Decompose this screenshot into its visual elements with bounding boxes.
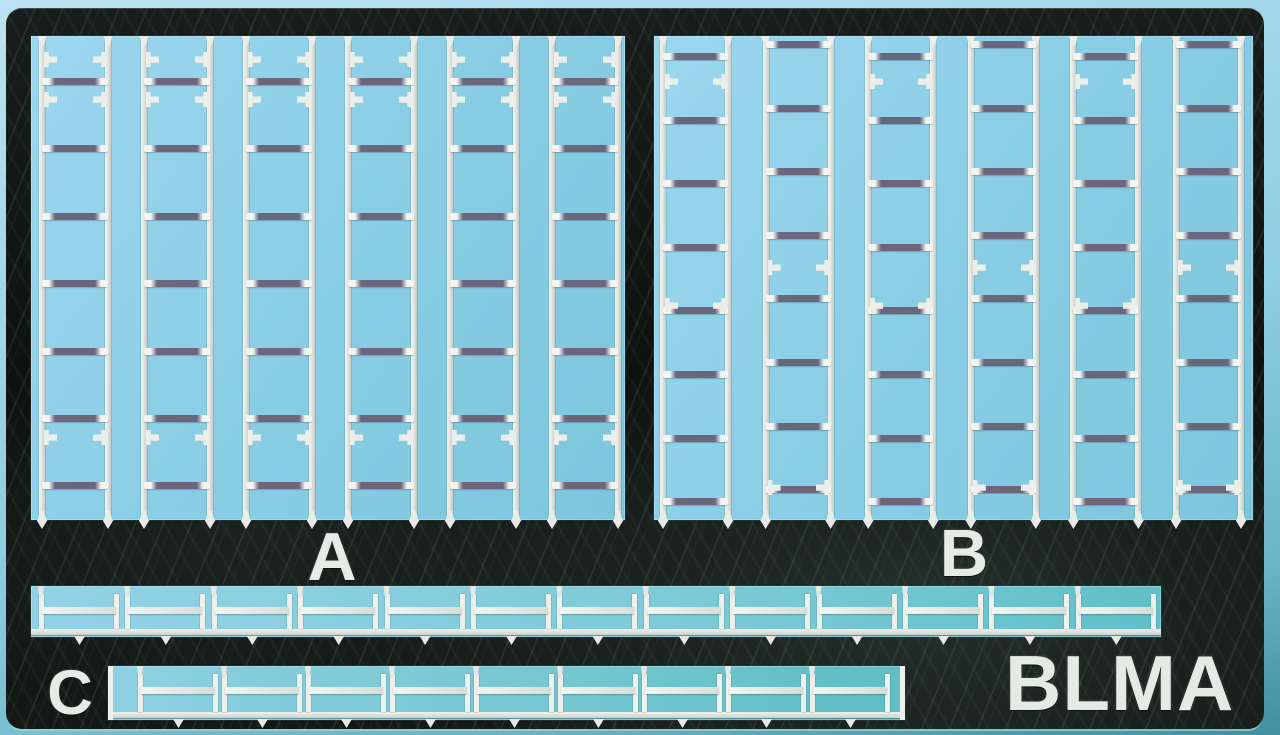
etch-tab [1030, 520, 1041, 529]
ladder-rung [1176, 423, 1241, 430]
ladder-rung [971, 105, 1036, 112]
etch-tab [511, 520, 522, 529]
etch-tab [862, 511, 874, 520]
etch-tab [1132, 511, 1144, 520]
ladder-rung [552, 280, 618, 287]
ladder-rung [144, 145, 210, 152]
mount-hook [452, 92, 465, 107]
mount-hook [452, 52, 465, 67]
etch-tab [1030, 511, 1042, 520]
etch-tab [723, 520, 734, 529]
part-cross-bar [813, 687, 887, 694]
window-section-a [31, 36, 625, 520]
ladder-rung [144, 78, 210, 85]
mount-hook [350, 430, 363, 445]
ladder-rail [243, 36, 249, 520]
ladder-rung [450, 145, 516, 152]
part-cross-bar [561, 687, 635, 694]
strip-end-cap [108, 666, 113, 720]
mount-hook [44, 92, 57, 107]
ladder-rung [868, 117, 933, 124]
etch-tab [928, 520, 939, 529]
ladder-rung [450, 348, 516, 355]
ladder-rail [930, 36, 936, 520]
grab-iron-part [558, 674, 638, 712]
etch-tab [139, 520, 150, 529]
mount-hook [603, 430, 616, 445]
ladder-rung [144, 415, 210, 422]
mount-hook [399, 92, 412, 107]
etch-tab [241, 520, 252, 529]
ladder-rung [1073, 53, 1138, 60]
mount-hook [195, 92, 208, 107]
ladder-rung [552, 78, 618, 85]
etch-tab [863, 520, 874, 529]
ladder-rung [1176, 168, 1241, 175]
strip-row-2 [108, 666, 905, 720]
etch-tab [257, 719, 268, 728]
part-cross-bar [141, 687, 215, 694]
ladder-rung [246, 280, 312, 287]
ladder [1070, 36, 1141, 520]
mount-hook [554, 430, 567, 445]
ladder-rail [725, 36, 731, 520]
grab-iron-part [471, 594, 551, 629]
ladder-rail [1135, 36, 1141, 520]
etch-tab [658, 520, 669, 529]
etch-tab [445, 520, 456, 529]
mount-hook [603, 92, 616, 107]
ladder-rung [450, 213, 516, 220]
ladder-rung [868, 180, 933, 187]
etch-tab [657, 511, 669, 520]
ladder-rung [1176, 105, 1241, 112]
mount-hook [1021, 260, 1034, 275]
etch-tab [341, 719, 352, 728]
ladder-rung [246, 482, 312, 489]
ladder-rung [552, 213, 618, 220]
mount-hook [297, 92, 310, 107]
part-cross-bar [992, 607, 1066, 614]
mount-hook [248, 92, 261, 107]
ladder-rail [549, 36, 555, 520]
ladder-rung [348, 482, 414, 489]
strip-row-1 [31, 586, 1161, 637]
mount-hook [195, 52, 208, 67]
etch-tab [1236, 520, 1247, 529]
mount-hook [554, 92, 567, 107]
etch-tab [1068, 520, 1079, 529]
mount-hook [816, 260, 829, 275]
ladder-rail [207, 36, 213, 520]
grab-iron-part [390, 674, 470, 712]
ladder-rung [766, 105, 831, 112]
grab-iron-part [903, 594, 983, 629]
etch-tab [845, 719, 856, 728]
ladder-rail [309, 36, 315, 520]
etch-tab [657, 36, 669, 45]
etch-tab [1067, 511, 1079, 520]
part-cross-bar [820, 607, 894, 614]
mount-hook [44, 430, 57, 445]
part-cross-bar [309, 687, 383, 694]
etch-tab [306, 36, 318, 45]
part-cross-bar [477, 687, 551, 694]
mount-hook [248, 430, 261, 445]
ladder [968, 36, 1039, 520]
ladder-rung [246, 78, 312, 85]
ladder-rung [450, 415, 516, 422]
part-cross-bar [647, 607, 721, 614]
etch-tab [760, 520, 771, 529]
etch-tab [240, 36, 252, 45]
section-label-a: A [307, 523, 356, 591]
ladder-rung [663, 53, 728, 60]
ladder-rung [144, 348, 210, 355]
ladder-rung [663, 435, 728, 442]
grab-iron-part [644, 594, 724, 629]
ladder-rung [1176, 232, 1241, 239]
mount-hook [248, 52, 261, 67]
strip-runner [108, 712, 905, 718]
etch-tab [1235, 511, 1247, 520]
etch-tab [612, 36, 624, 45]
mount-hook [973, 260, 986, 275]
etch-tab [102, 36, 114, 45]
etch-tab [613, 520, 624, 529]
etch-tab [927, 36, 939, 45]
ladder-rail [513, 36, 519, 520]
etch-tab [825, 511, 837, 520]
fret-sheet: A B C BLMA [6, 8, 1264, 729]
mount-hook [146, 52, 159, 67]
grab-iron-part [39, 594, 119, 629]
mount-hook [350, 52, 363, 67]
part-cross-bar [474, 607, 548, 614]
ladder-rail [345, 36, 351, 520]
mount-hook [1226, 260, 1239, 275]
part-cross-bar [729, 687, 803, 694]
etch-tab [825, 520, 836, 529]
etch-tab [240, 511, 252, 520]
mount-hook [501, 52, 514, 67]
etch-tab [938, 636, 949, 645]
grab-iron-part [298, 594, 378, 629]
part-cross-bar [560, 607, 634, 614]
etched-fret-photo: A B C BLMA [0, 0, 1280, 735]
etch-tab [765, 636, 776, 645]
mount-hook [554, 52, 567, 67]
etch-tab [1133, 520, 1144, 529]
grab-iron-part [125, 594, 205, 629]
ladder [39, 36, 111, 520]
part-cross-bar [225, 687, 299, 694]
grab-iron-part [642, 674, 722, 712]
grab-iron-part [474, 674, 554, 712]
ladder [549, 36, 621, 520]
ladder-rung [868, 53, 933, 60]
etch-tab [408, 511, 420, 520]
mount-hook [195, 430, 208, 445]
part-cross-bar [393, 687, 467, 694]
etch-tab [506, 636, 517, 645]
ladder-rung [552, 415, 618, 422]
ladder [865, 36, 936, 520]
section-label-b: B [940, 520, 988, 587]
ladder-rung [246, 348, 312, 355]
ladder-rung [1176, 41, 1241, 48]
part-cross-bar [301, 607, 375, 614]
ladder-rung [766, 423, 831, 430]
etch-tab [444, 511, 456, 520]
ladder-rung [552, 482, 618, 489]
grab-iron-part [222, 674, 302, 712]
ladder-rung [868, 371, 933, 378]
ladder-rung [348, 348, 414, 355]
ladder-rung [663, 244, 728, 251]
etch-tab [342, 36, 354, 45]
etch-tab [546, 36, 558, 45]
ladder-rail [865, 36, 871, 520]
ladder-rung [1176, 359, 1241, 366]
part-cross-bar [1079, 607, 1153, 614]
etch-tab [103, 520, 114, 529]
ladder-rung [663, 180, 728, 187]
ladder-rung [42, 213, 108, 220]
etch-tab [36, 36, 48, 45]
etch-tab [612, 511, 624, 520]
etch-tab [138, 511, 150, 520]
grab-iron-part [306, 674, 386, 712]
ladder-rung [663, 117, 728, 124]
mount-hook [713, 74, 726, 89]
ladder-rung [1073, 435, 1138, 442]
ladder-rung [766, 232, 831, 239]
ladder-rung [1073, 371, 1138, 378]
etch-tab [102, 511, 114, 520]
etch-tab [1170, 511, 1182, 520]
etch-tab [760, 511, 772, 520]
mount-hook [399, 430, 412, 445]
ladder-rung [42, 348, 108, 355]
etch-tab [138, 36, 150, 45]
ladder-rail [141, 36, 147, 520]
mount-hook [146, 430, 159, 445]
ladder-rung [42, 78, 108, 85]
etch-tab [333, 636, 344, 645]
mount-hook [501, 92, 514, 107]
etch-tab [509, 719, 520, 728]
ladder-rail [411, 36, 417, 520]
etch-tab [160, 636, 171, 645]
etch-tab [36, 511, 48, 520]
part-cross-bar [128, 607, 202, 614]
ladder [141, 36, 213, 520]
ladder-rail [1070, 36, 1076, 520]
grab-iron-part [385, 594, 465, 629]
etch-tab [425, 719, 436, 728]
brand-logo: BLMA [1005, 644, 1234, 722]
ladder-rung [766, 295, 831, 302]
mount-hook [93, 52, 106, 67]
ladder-rung [971, 359, 1036, 366]
ladder-rung [868, 244, 933, 251]
ladder [243, 36, 315, 520]
etch-tab [761, 719, 772, 728]
ladder-rail [105, 36, 111, 520]
strip-runner [31, 629, 1161, 635]
mount-hook [146, 92, 159, 107]
grab-iron-part [730, 594, 810, 629]
ladder-rung [42, 415, 108, 422]
ladder-rung [246, 415, 312, 422]
ladder [660, 36, 731, 520]
ladder-rung [246, 213, 312, 220]
etch-tab [510, 36, 522, 45]
ladder-rung [450, 280, 516, 287]
ladder [1173, 36, 1244, 520]
ladder [447, 36, 519, 520]
mount-hook [297, 52, 310, 67]
etch-tab [593, 719, 604, 728]
ladder-rail [447, 36, 453, 520]
ladder-rail [39, 36, 45, 520]
ladder-rung [971, 41, 1036, 48]
ladder-rung [144, 280, 210, 287]
etch-tab [173, 719, 184, 728]
grab-iron-part [138, 674, 218, 712]
ladder-rung [348, 78, 414, 85]
etch-tab [852, 636, 863, 645]
ladder-rung [348, 145, 414, 152]
ladder-rung [868, 498, 933, 505]
mount-hook [350, 92, 363, 107]
etch-tab [722, 36, 734, 45]
etch-tab [1067, 36, 1079, 45]
part-cross-bar [906, 607, 980, 614]
etch-tab [205, 520, 216, 529]
ladder-rung [766, 41, 831, 48]
ladder-rung [766, 359, 831, 366]
mount-hook [93, 430, 106, 445]
ladder-rung [552, 348, 618, 355]
ladder-rung [144, 482, 210, 489]
ladder-rung [42, 482, 108, 489]
grab-iron-part [989, 594, 1069, 629]
etch-tab [592, 636, 603, 645]
etch-tab [444, 36, 456, 45]
mount-hook [1075, 74, 1088, 89]
mount-hook [603, 52, 616, 67]
ladder-rung [348, 415, 414, 422]
etch-tab [677, 719, 688, 728]
mount-hook [93, 92, 106, 107]
section-label-c: C [47, 662, 93, 725]
etch-tab [510, 511, 522, 520]
etch-tab [927, 511, 939, 520]
ladder-rung [971, 168, 1036, 175]
mount-hook [918, 74, 931, 89]
grab-iron-part [726, 674, 806, 712]
mount-hook [870, 74, 883, 89]
ladder [763, 36, 834, 520]
mount-hook [768, 260, 781, 275]
etch-tab [420, 636, 431, 645]
mount-hook [399, 52, 412, 67]
strip-end-cap [900, 666, 905, 720]
ladder-rung [348, 213, 414, 220]
etch-tab [204, 511, 216, 520]
mount-hook [1123, 74, 1136, 89]
ladder-rung [246, 145, 312, 152]
grab-iron-part [810, 674, 890, 712]
ladder-rung [348, 280, 414, 287]
mount-hook [452, 430, 465, 445]
etch-tab [247, 636, 258, 645]
ladder-rung [144, 213, 210, 220]
window-section-b [654, 36, 1253, 520]
ladder-rail [660, 36, 666, 520]
etch-tab [546, 511, 558, 520]
part-cross-bar [215, 607, 289, 614]
part-cross-bar [645, 687, 719, 694]
etch-tab [409, 520, 420, 529]
ladder-rung [663, 498, 728, 505]
grab-iron-part [1076, 594, 1156, 629]
ladder-rung [450, 78, 516, 85]
mount-hook [501, 430, 514, 445]
mount-hook [1178, 260, 1191, 275]
etch-tab [204, 36, 216, 45]
grab-iron-part [817, 594, 897, 629]
ladder-rung [42, 280, 108, 287]
etch-tab [679, 636, 690, 645]
part-cross-bar [388, 607, 462, 614]
ladder-rung [552, 145, 618, 152]
mount-hook [665, 74, 678, 89]
ladder-rung [663, 371, 728, 378]
mount-hook [297, 430, 310, 445]
etch-tab [862, 36, 874, 45]
etch-tab [1132, 36, 1144, 45]
etch-tab [722, 511, 734, 520]
ladder-rail [615, 36, 621, 520]
part-cross-bar [42, 607, 116, 614]
ladder-rung [1073, 244, 1138, 251]
ladder-rung [1073, 180, 1138, 187]
ladder-rung [971, 423, 1036, 430]
ladder-rung [766, 168, 831, 175]
ladder-rung [971, 232, 1036, 239]
etch-tab [37, 520, 48, 529]
ladder-rung [42, 145, 108, 152]
ladder-rung [868, 435, 933, 442]
ladder-rung [1073, 498, 1138, 505]
grab-iron-part [557, 594, 637, 629]
ladder-rung [1073, 117, 1138, 124]
part-cross-bar [733, 607, 807, 614]
ladder-rung [1176, 295, 1241, 302]
etch-tab [1171, 520, 1182, 529]
ladder-rung [971, 295, 1036, 302]
ladder [345, 36, 417, 520]
etch-tab [74, 636, 85, 645]
etch-tab [547, 520, 558, 529]
grab-iron-part [212, 594, 292, 629]
mount-hook [44, 52, 57, 67]
ladder-rung [450, 482, 516, 489]
etch-tab [408, 36, 420, 45]
